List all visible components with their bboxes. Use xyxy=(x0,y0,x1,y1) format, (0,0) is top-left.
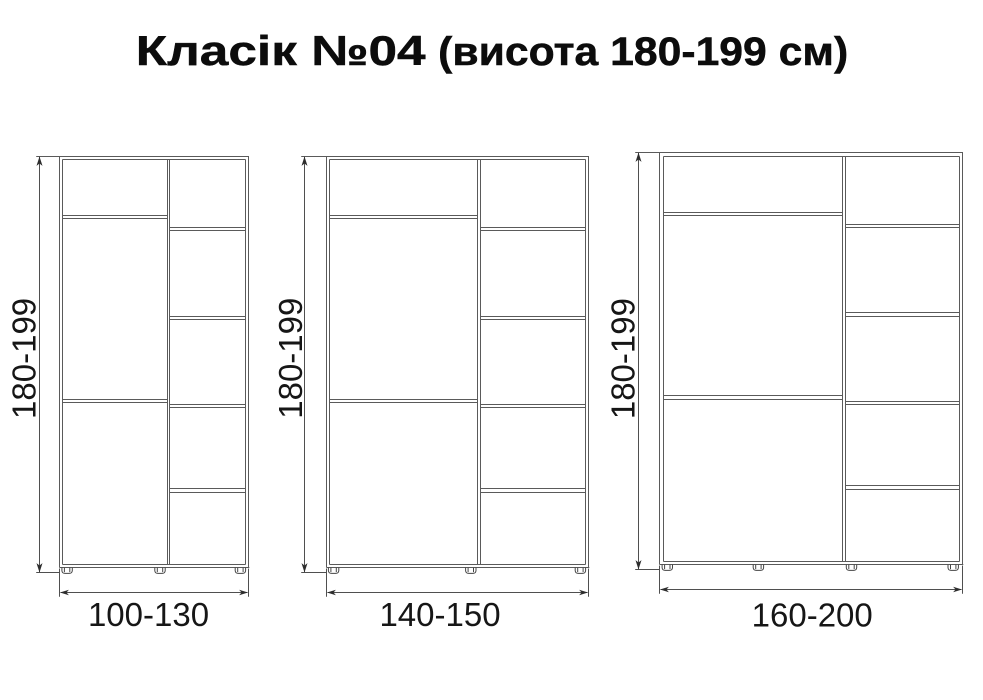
svg-text:(висота 180-199 см): (висота 180-199 см) xyxy=(438,30,848,74)
svg-text:Класік №04: Класік №04 xyxy=(136,27,427,74)
svg-text:100-130: 100-130 xyxy=(88,596,209,633)
svg-text:140-150: 140-150 xyxy=(379,596,500,633)
svg-text:180-199: 180-199 xyxy=(5,298,42,419)
svg-text:180-199: 180-199 xyxy=(272,298,309,419)
svg-text:180-199: 180-199 xyxy=(605,298,642,419)
svg-text:160-200: 160-200 xyxy=(752,597,873,634)
